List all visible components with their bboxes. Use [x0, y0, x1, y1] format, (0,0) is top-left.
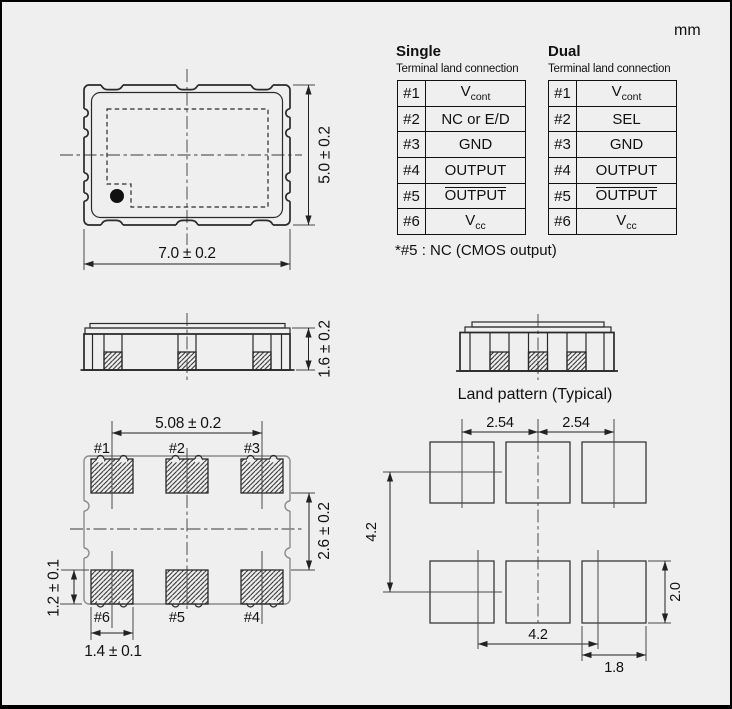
single-connection-table: #1 Vcont #2 NC or E/D #3 GND #4 OUTPUT #… [397, 80, 526, 235]
pin-number: #1 [398, 81, 426, 107]
land-pattern-drawing: 2.54 2.54 4.2 4.2 1.8 2.0 [364, 415, 684, 676]
dual-connection-table: #1 Vcont #2 SEL #3 GND #4 OUTPUT #5 OUTP… [548, 80, 677, 235]
top-view-drawing: 5.0 ± 0.2 7.0 ± 0.2 [60, 69, 334, 270]
pin-number: #4 [398, 158, 426, 184]
table-row: #1 Vcont [398, 81, 526, 107]
land-pitch-dim-right: 2.54 [562, 415, 590, 431]
single-table-title: Single [396, 43, 441, 60]
bottom-view-row-gap-dim: 2.6 ± 0.2 [316, 502, 333, 560]
pin-function-inverted: OUTPUT [426, 183, 526, 209]
pad-label-2: #2 [169, 441, 185, 457]
dual-table-title: Dual [548, 43, 581, 60]
pin1-marker-dot [110, 189, 124, 203]
pad-label-6: #6 [94, 610, 110, 626]
pin-function: Vcc [577, 209, 677, 235]
table-row: #3 GND [549, 132, 677, 158]
pin-number: #6 [398, 209, 426, 235]
top-view-width-dim: 7.0 ± 0.2 [158, 245, 216, 262]
table-row: #6 Vcc [549, 209, 677, 235]
pad-label-5: #5 [169, 610, 185, 626]
bottom-view-pitch-dim: 5.08 ± 0.2 [155, 415, 221, 432]
side-view-front-drawing: 1.6 ± 0.2 [81, 313, 334, 383]
pin-number: #2 [549, 106, 577, 132]
pin-function-inverted: OUTPUT [577, 183, 677, 209]
pin-function: OUTPUT [426, 158, 526, 184]
table-row: #5 OUTPUT [549, 183, 677, 209]
pin-number: #5 [549, 183, 577, 209]
table-row: #4 OUTPUT [398, 158, 526, 184]
land-pad-width-dim: 1.8 [604, 660, 624, 676]
bottom-view-pad-height-dim: 1.2 ± 0.1 [46, 559, 63, 617]
pad-label-3: #3 [244, 441, 260, 457]
pin-number: #4 [549, 158, 577, 184]
pin-function: GND [426, 132, 526, 158]
pin-function: NC or E/D [426, 106, 526, 132]
pin-function: Vcont [577, 81, 677, 107]
bottom-view-pad-width-dim: 1.4 ± 0.1 [84, 643, 142, 660]
table-row: #6 Vcc [398, 209, 526, 235]
pin-function: SEL [577, 106, 677, 132]
pin-number: #2 [398, 106, 426, 132]
pin-number: #5 [398, 183, 426, 209]
pin-function: GND [577, 132, 677, 158]
land-pad-height-dim: 2.0 [668, 582, 684, 602]
pin-function: Vcc [426, 209, 526, 235]
table-row: #2 SEL [549, 106, 677, 132]
table-row: #1 Vcont [549, 81, 677, 107]
side-view-height-dim: 1.6 ± 0.2 [317, 320, 334, 378]
table-row: #4 OUTPUT [549, 158, 677, 184]
side-view-end-drawing [456, 314, 618, 380]
pin-number: #6 [549, 209, 577, 235]
pin-number: #1 [549, 81, 577, 107]
bottom-view-drawing: #1 #2 #3 #6 #5 #4 5.08 ± 0.2 2.6 ± 0.2 1… [46, 415, 334, 660]
pad-label-1: #1 [94, 441, 110, 457]
package-dimensions-figure: mm [0, 0, 732, 709]
table-footnote: *#5 : NC (CMOS output) [395, 242, 557, 259]
land-row-span-dim: 4.2 [364, 522, 380, 542]
table-row: #3 GND [398, 132, 526, 158]
land-col-span-dim: 4.2 [528, 627, 548, 643]
dual-table-subtitle: Terminal land connection [548, 63, 670, 75]
pin-function: OUTPUT [577, 158, 677, 184]
pin-number: #3 [398, 132, 426, 158]
top-view-height-dim: 5.0 ± 0.2 [317, 126, 334, 184]
single-table-subtitle: Terminal land connection [396, 63, 518, 75]
land-pitch-dim-left: 2.54 [486, 415, 514, 431]
table-row: #5 OUTPUT [398, 183, 526, 209]
land-pattern-title: Land pattern (Typical) [458, 386, 613, 403]
pad-label-4: #4 [244, 610, 260, 626]
pin-function: Vcont [426, 81, 526, 107]
pin-number: #3 [549, 132, 577, 158]
table-row: #2 NC or E/D [398, 106, 526, 132]
